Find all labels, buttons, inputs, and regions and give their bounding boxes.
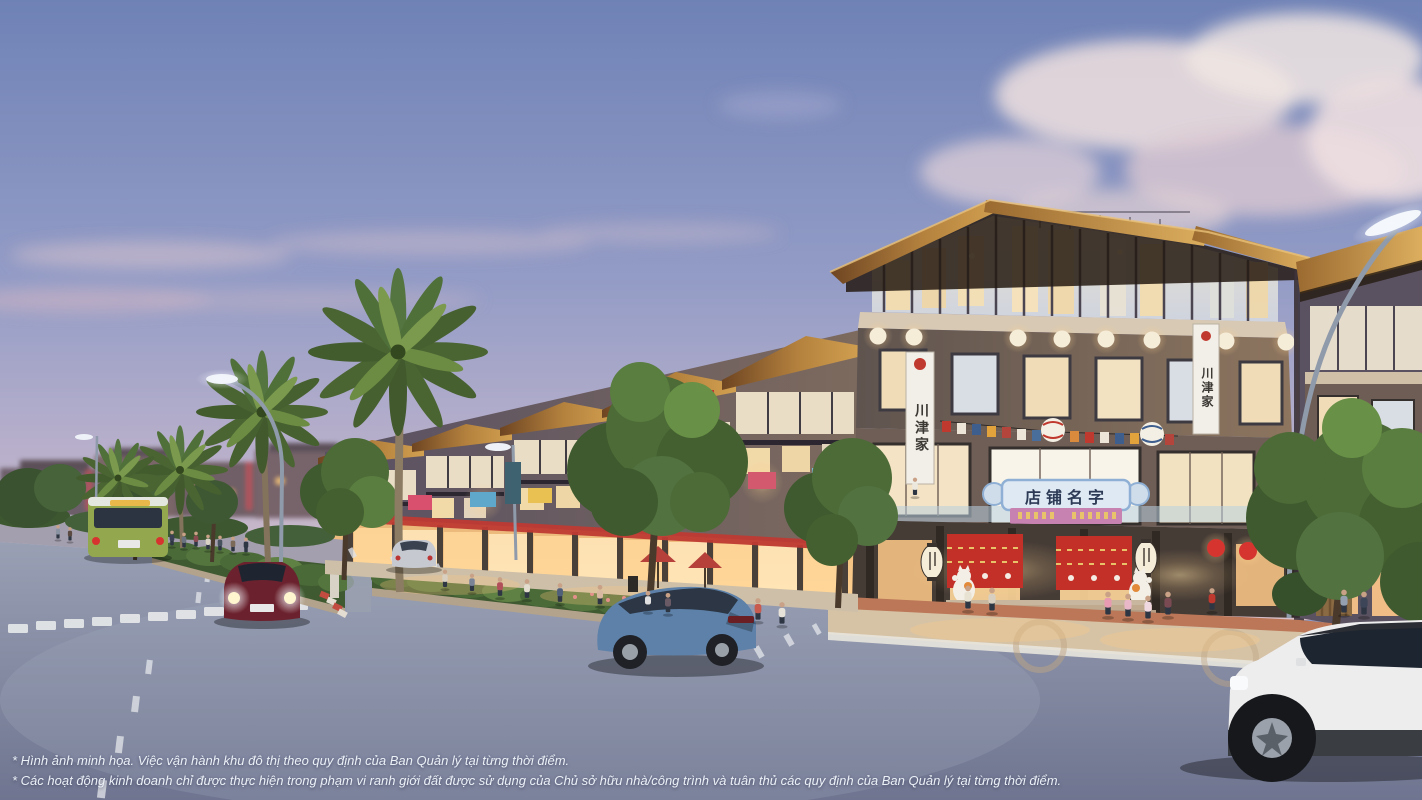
noren-curtain-right — [1056, 536, 1132, 590]
menu-board — [628, 576, 638, 592]
main-shophouse-building — [830, 200, 1310, 618]
street-render-scene: * Hình ảnh minh họa. Việc vận hành khu đ… — [0, 0, 1422, 800]
calligraphy-banner-left — [906, 352, 934, 484]
calligraphy-banner-right — [1193, 324, 1219, 434]
side-mirror — [1296, 658, 1306, 666]
bus — [84, 497, 172, 564]
seal-stamp-icon — [914, 358, 926, 370]
scene-canvas — [0, 0, 1422, 800]
pole-banner — [505, 462, 521, 504]
seal-stamp-icon — [1201, 331, 1211, 341]
median-bollard — [330, 574, 339, 598]
